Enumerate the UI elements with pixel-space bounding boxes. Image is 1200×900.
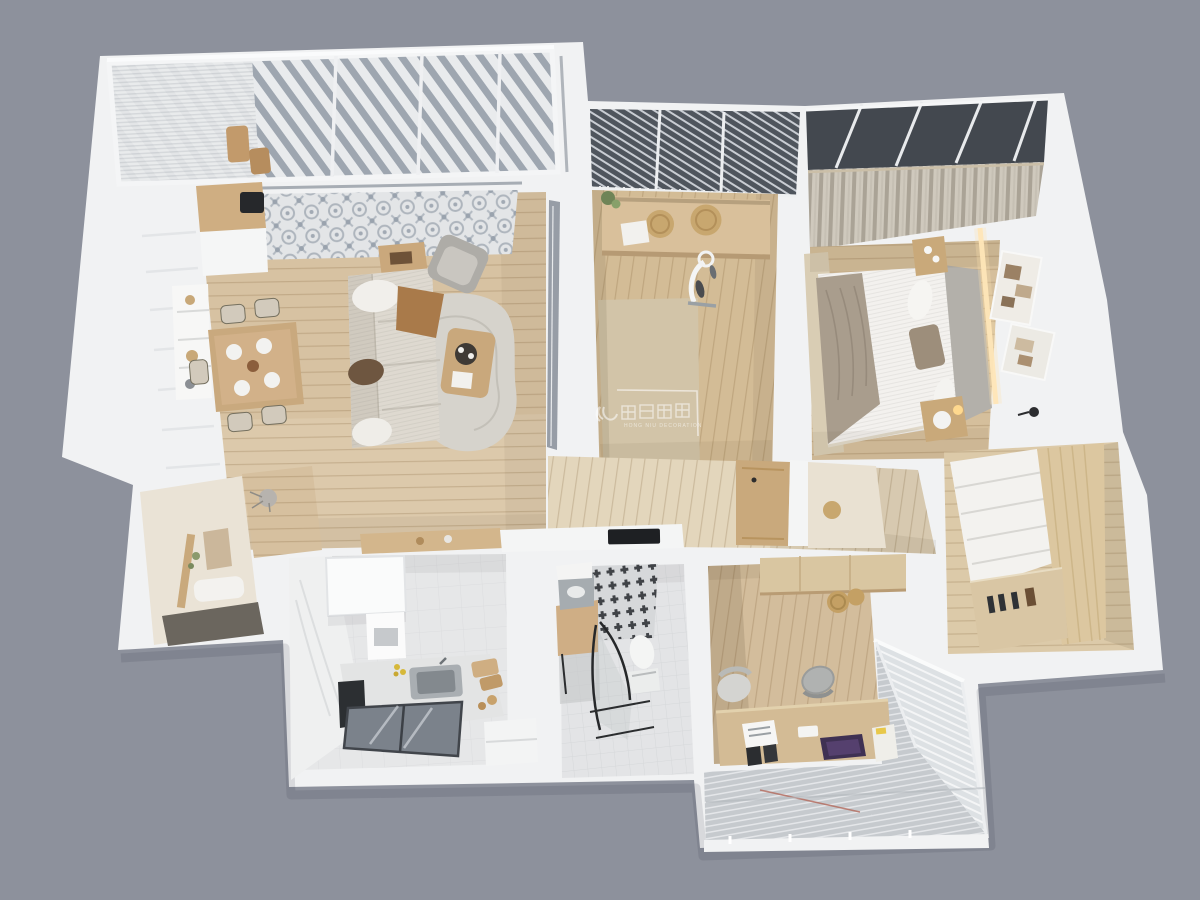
svg-text:HONG NIU DECORATION: HONG NIU DECORATION (624, 423, 702, 429)
